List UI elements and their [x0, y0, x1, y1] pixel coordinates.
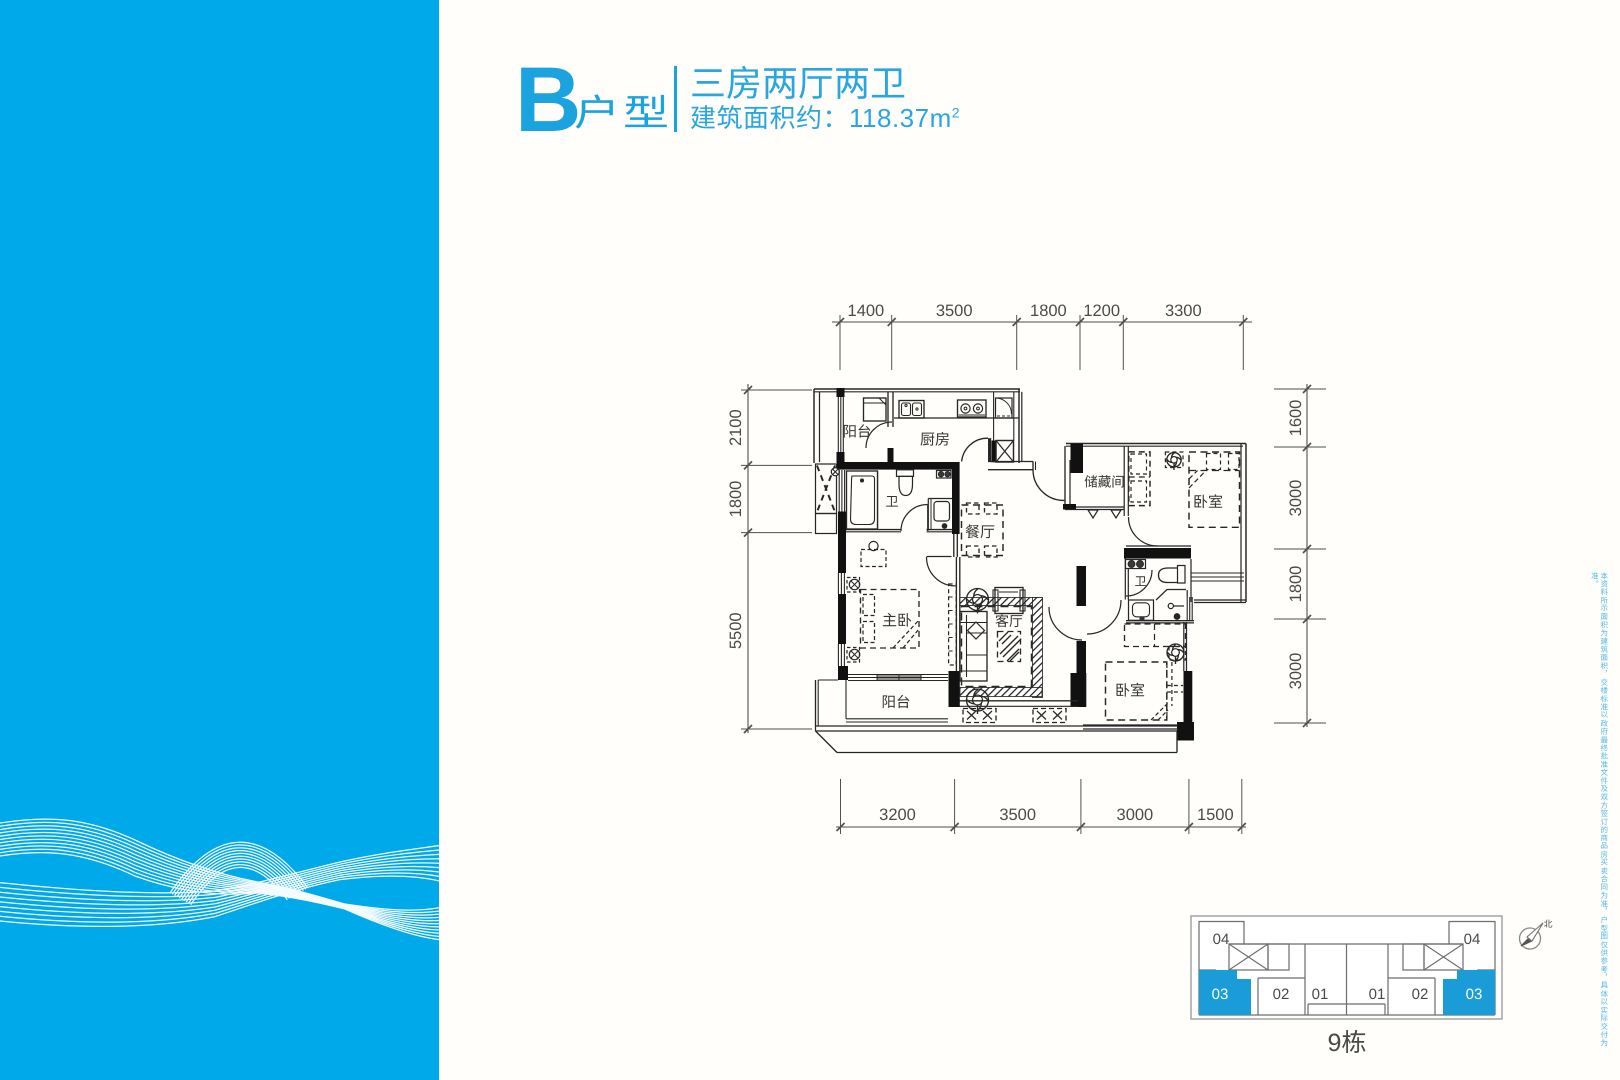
- svg-text:01: 01: [1369, 986, 1386, 1003]
- svg-text:2100: 2100: [727, 409, 745, 446]
- svg-text:3000: 3000: [1117, 806, 1154, 824]
- svg-text:客厅: 客厅: [995, 613, 1023, 629]
- svg-text:1500: 1500: [1197, 806, 1234, 824]
- svg-text:02: 02: [1273, 986, 1290, 1003]
- svg-text:3200: 3200: [879, 806, 916, 824]
- svg-text:卧室: 卧室: [1193, 494, 1223, 511]
- svg-text:1200: 1200: [1083, 302, 1120, 320]
- svg-text:04: 04: [1213, 931, 1230, 948]
- svg-text:1400: 1400: [848, 302, 885, 320]
- svg-text:餐厅: 餐厅: [965, 524, 995, 541]
- svg-text:卫: 卫: [1134, 575, 1146, 589]
- svg-text:03: 03: [1212, 986, 1229, 1003]
- svg-text:1800: 1800: [1030, 302, 1067, 320]
- svg-text:1800: 1800: [727, 481, 745, 518]
- svg-text:1600: 1600: [1287, 400, 1305, 437]
- svg-text:卫: 卫: [885, 494, 898, 509]
- svg-text:储藏间: 储藏间: [1084, 475, 1125, 490]
- svg-text:04: 04: [1464, 931, 1481, 948]
- svg-text:3500: 3500: [999, 806, 1036, 824]
- svg-text:北: 北: [1543, 919, 1552, 929]
- svg-text:厨房: 厨房: [920, 432, 950, 449]
- svg-text:3300: 3300: [1165, 302, 1202, 320]
- svg-text:3000: 3000: [1287, 653, 1305, 690]
- svg-text:5500: 5500: [727, 612, 745, 649]
- svg-text:03: 03: [1466, 986, 1483, 1003]
- svg-text:主卧: 主卧: [882, 613, 912, 630]
- svg-text:1800: 1800: [1287, 566, 1305, 603]
- svg-text:阳台: 阳台: [843, 424, 872, 441]
- svg-text:3500: 3500: [936, 302, 973, 320]
- svg-text:阳台: 阳台: [882, 694, 911, 711]
- svg-text:卧室: 卧室: [1115, 683, 1145, 700]
- svg-text:3000: 3000: [1287, 480, 1305, 517]
- svg-text:9栋: 9栋: [1328, 1029, 1367, 1057]
- svg-text:01: 01: [1312, 986, 1329, 1003]
- svg-text:02: 02: [1412, 986, 1429, 1003]
